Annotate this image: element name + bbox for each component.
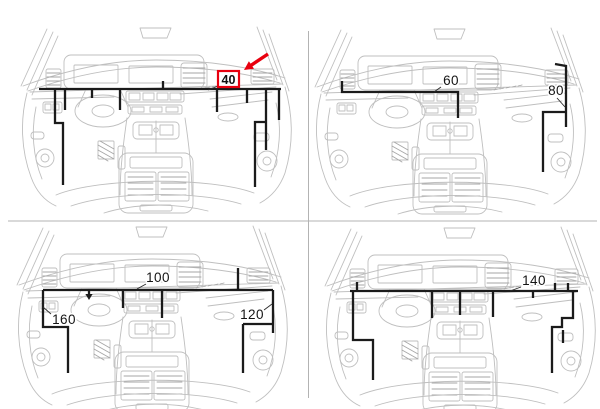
highlighted-value-40: 40 [222, 73, 236, 87]
pointer-arrow-shaft [249, 54, 268, 67]
harness-line-panel-bottom-left [43, 290, 68, 373]
diagram-page: 406080100160120140 [0, 0, 600, 409]
measurement-label-140: 140 [522, 273, 546, 288]
dashboard-sketch-panel-bottom-right [325, 227, 595, 409]
dashboard-sketch-panel-top-right [315, 28, 585, 214]
measurement-label-120: 120 [240, 307, 264, 322]
label-leader-line [557, 98, 565, 107]
dashboard-sketch-layer [17, 27, 595, 409]
label-leader-line [264, 304, 272, 310]
panel-dividers [8, 31, 597, 398]
dashboard-sketch-panel-top-left [21, 27, 291, 213]
measurement-label-80: 80 [548, 83, 564, 98]
measurement-label-60: 60 [443, 73, 459, 88]
measurement-label-160: 160 [52, 312, 76, 327]
harness-location-figure: 406080100160120140 [0, 0, 600, 409]
measurement-label-100: 100 [146, 270, 170, 285]
harness-line-panel-top-left [255, 122, 266, 187]
